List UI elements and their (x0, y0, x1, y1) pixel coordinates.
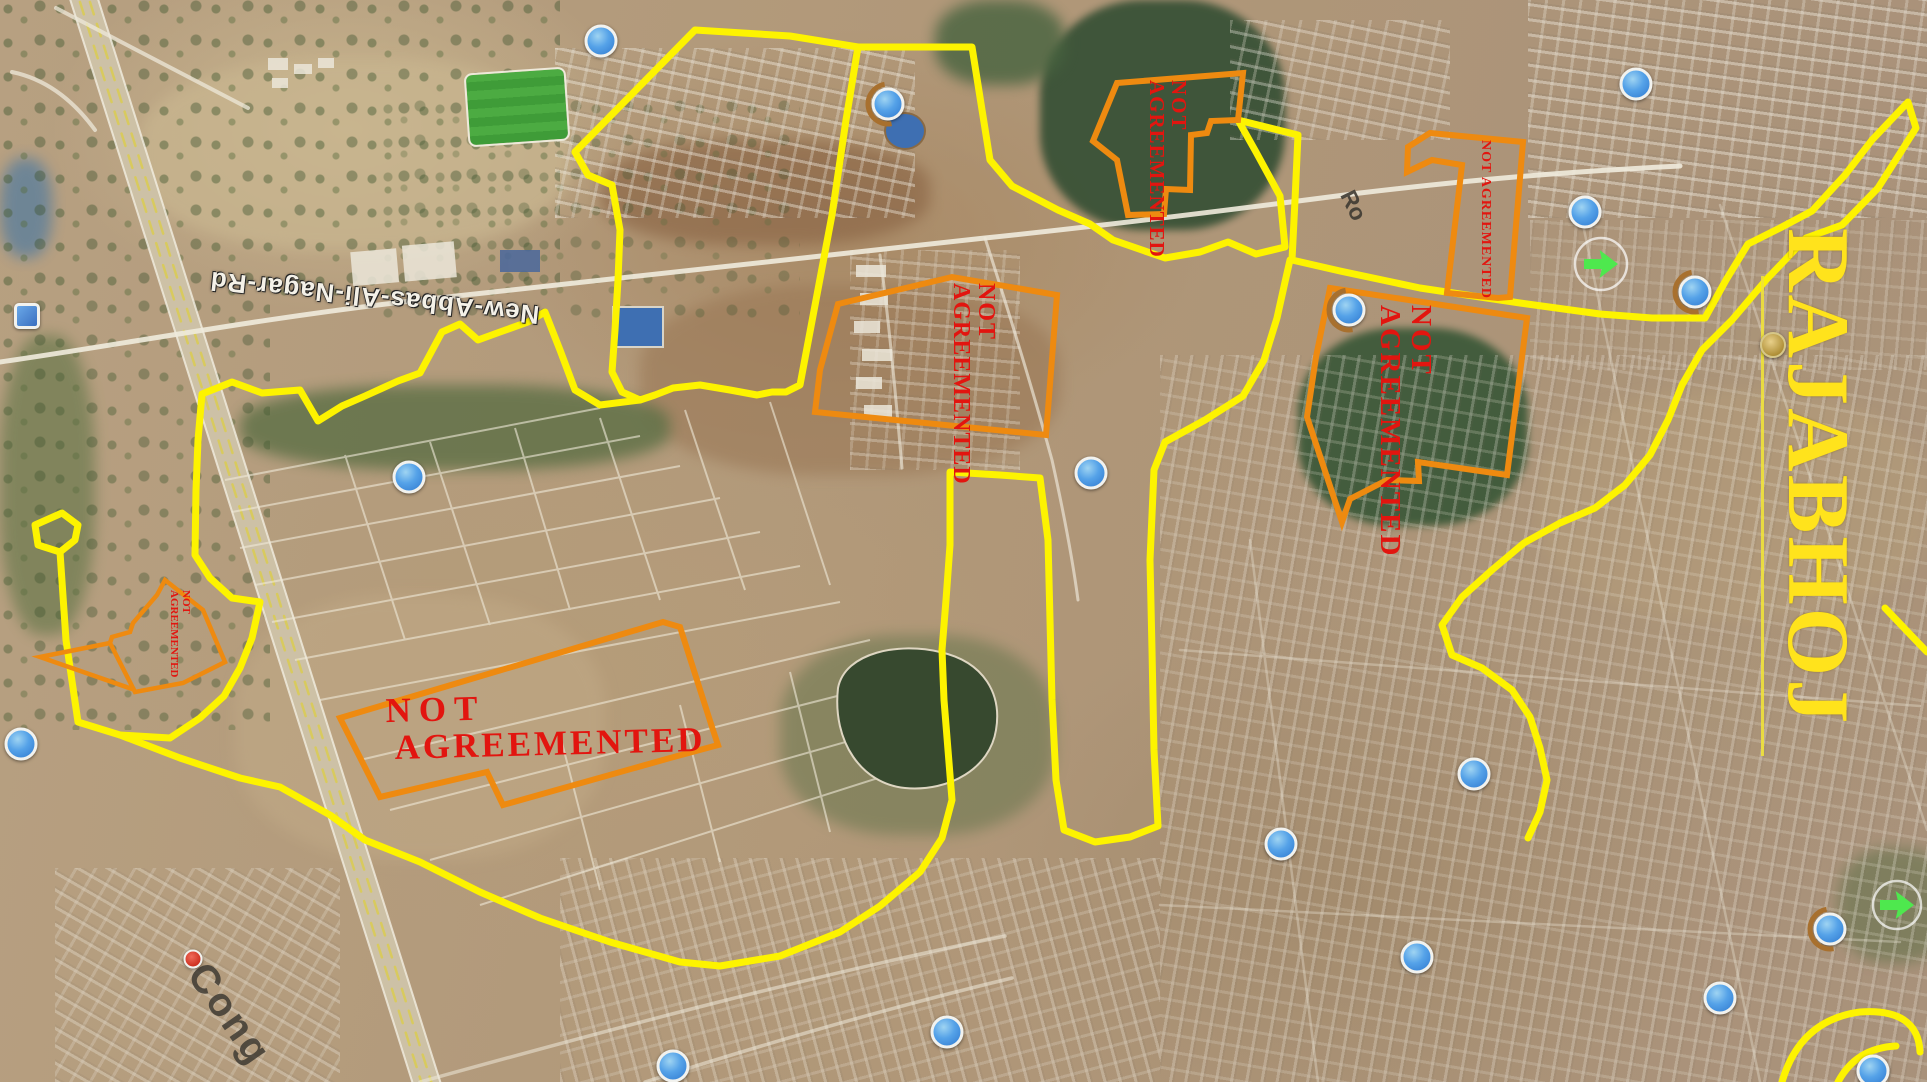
not-agreemented-line2: AGREEMENTED (947, 283, 972, 485)
gold-circle-marker-icon[interactable] (1760, 332, 1786, 358)
boundary-right-edge-fragment (1885, 608, 1927, 652)
not-agreemented-zone-west: NOT AGREEMENTED (168, 590, 191, 677)
blue-place-marker-icon[interactable] (1265, 828, 1298, 861)
not-agreemented-line2: AGREEMENTED (1375, 305, 1406, 557)
blue-place-marker-icon[interactable] (1704, 982, 1737, 1015)
blue-place-marker-icon[interactable] (1333, 294, 1366, 327)
blue-place-marker-icon[interactable] (1679, 276, 1712, 309)
road-network (0, 0, 1927, 1082)
not-agreemented-zone-outlines (40, 73, 1527, 805)
not-agreemented-line2: AGREEMENTED (168, 590, 180, 677)
blue-place-marker-icon[interactable] (1857, 1055, 1890, 1082)
blue-place-marker-icon[interactable] (1401, 941, 1434, 974)
not-agreemented-full: NOT AGREEMENTED (1478, 140, 1493, 299)
blue-place-marker-icon[interactable] (1814, 913, 1847, 946)
not-agreemented-line1: NOT (179, 590, 191, 677)
blue-place-marker-icon[interactable] (5, 728, 38, 761)
survey-boundary-yellow (35, 30, 1927, 1082)
not-agreemented-line1: NOT (973, 283, 998, 485)
roads-bottom (420, 936, 1012, 1082)
blue-place-marker-icon[interactable] (931, 1016, 964, 1049)
not-agreemented-zone-north: NOT AGREEMENTED (1146, 80, 1191, 258)
blue-square-marker-icon[interactable] (14, 303, 40, 329)
blue-place-marker-icon[interactable] (393, 461, 426, 494)
plot-fan-upper (225, 408, 840, 700)
boundary-south-loop (120, 260, 1290, 966)
not-agreemented-line2: AGREEMENTED (1146, 80, 1168, 258)
building-footprints (268, 58, 892, 417)
boundary-upper-pocket (575, 47, 858, 400)
not-agreemented-zone-east: NOT AGREEMENTED (1375, 305, 1436, 557)
park-marker-rings (1575, 238, 1921, 929)
blue-place-marker-icon[interactable] (657, 1050, 690, 1082)
zone-outline-northeast-strip (1407, 133, 1523, 298)
not-agreemented-line1: NOT (1405, 305, 1436, 557)
boundary-north-east (575, 30, 1916, 838)
not-agreemented-zone-center: NOT AGREEMENTED (947, 283, 998, 485)
blue-roof-building (500, 250, 540, 272)
satellite-map-canvas[interactable]: NOT AGREEMENTED NOT AGREEMENTED NOT AGRE… (0, 0, 1927, 1082)
blue-place-marker-icon[interactable] (872, 88, 905, 121)
not-agreemented-line2: AGREEMENTED (394, 721, 706, 766)
blue-place-marker-icon[interactable] (1569, 196, 1602, 229)
blue-place-marker-icon[interactable] (1620, 68, 1653, 101)
warehouse-row (350, 241, 457, 286)
plot-cross-upper (345, 402, 830, 640)
not-agreemented-zone-southwest: NOT AGREEMENTED (385, 684, 706, 767)
boundary-corner-curls (1782, 1012, 1920, 1082)
blue-place-marker-icon[interactable] (1075, 457, 1108, 490)
blue-place-marker-icon[interactable] (585, 25, 618, 58)
red-dot-marker-icon[interactable] (184, 950, 203, 969)
pond (837, 648, 997, 788)
map-overlay-vectors (0, 0, 1927, 1082)
not-agreemented-line1: NOT (1168, 80, 1190, 258)
not-agreemented-zone-northeast: NOT AGREEMENTED (1477, 140, 1492, 299)
region-name-label: RAJABHOJ (1767, 228, 1868, 726)
boundary-west (60, 312, 640, 738)
boundary-west-blob (35, 513, 78, 552)
blue-place-marker-icon[interactable] (1458, 758, 1491, 791)
